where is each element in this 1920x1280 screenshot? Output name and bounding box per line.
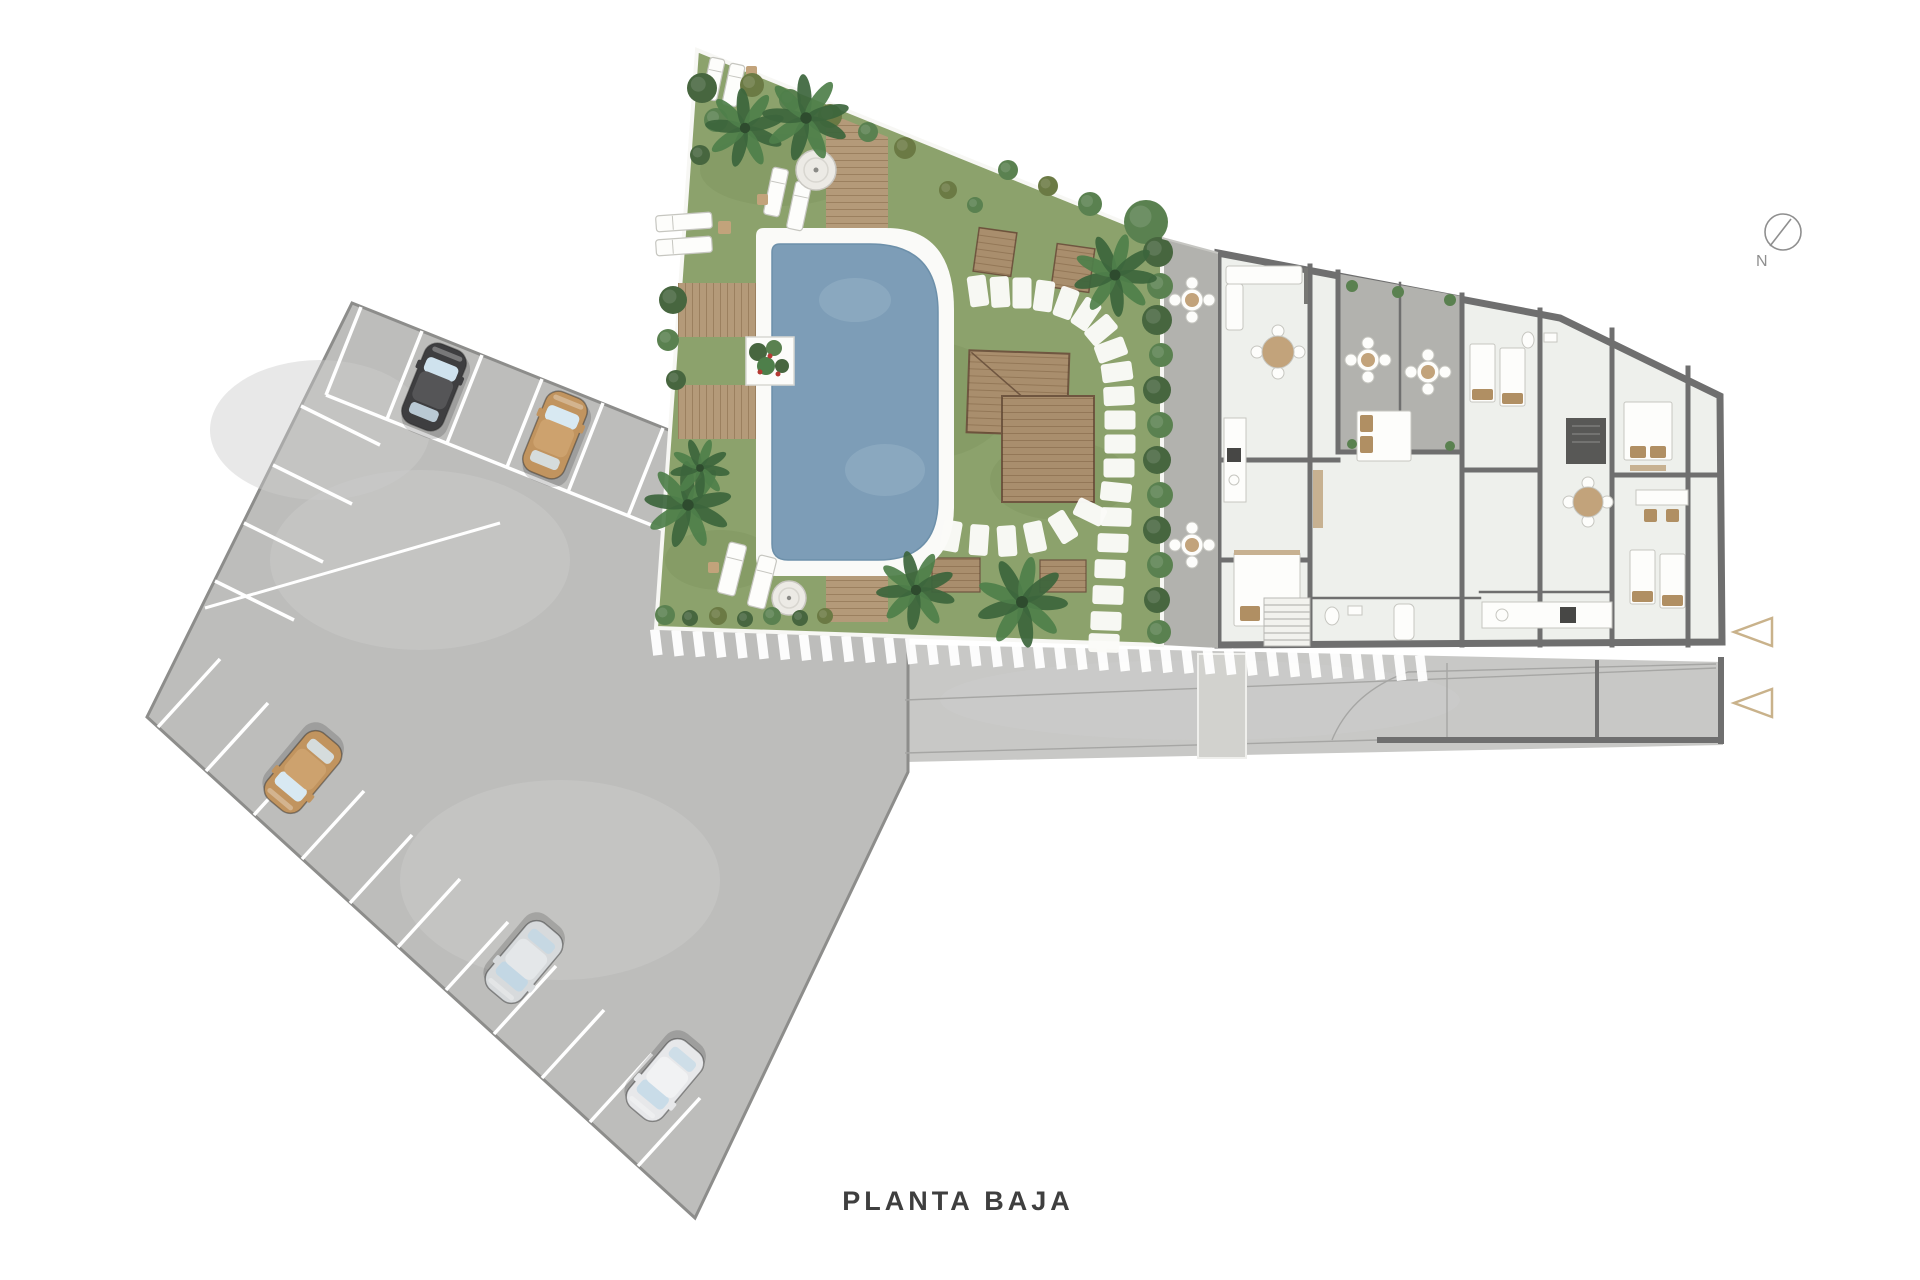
side-table xyxy=(718,221,731,234)
floor-plan-page: N PLANTA BAJA xyxy=(0,0,1920,1280)
compass: N xyxy=(1756,214,1801,270)
exit-arrow-icon xyxy=(1734,618,1772,646)
wood-bench-1 xyxy=(973,228,1017,277)
side-table xyxy=(757,194,768,205)
garden xyxy=(643,50,1173,653)
exit-arrow-icon-2 xyxy=(1734,689,1772,717)
sun-lounger xyxy=(656,212,713,232)
parasol-icon xyxy=(796,150,836,190)
sun-lounger xyxy=(656,236,713,256)
north-label: N xyxy=(1756,253,1769,270)
site-plan: N PLANTA BAJA xyxy=(0,0,1920,1280)
planter xyxy=(746,337,794,385)
side-table xyxy=(708,562,719,573)
plan-title: PLANTA BAJA xyxy=(842,1186,1074,1216)
exit-arrows xyxy=(1734,618,1772,717)
